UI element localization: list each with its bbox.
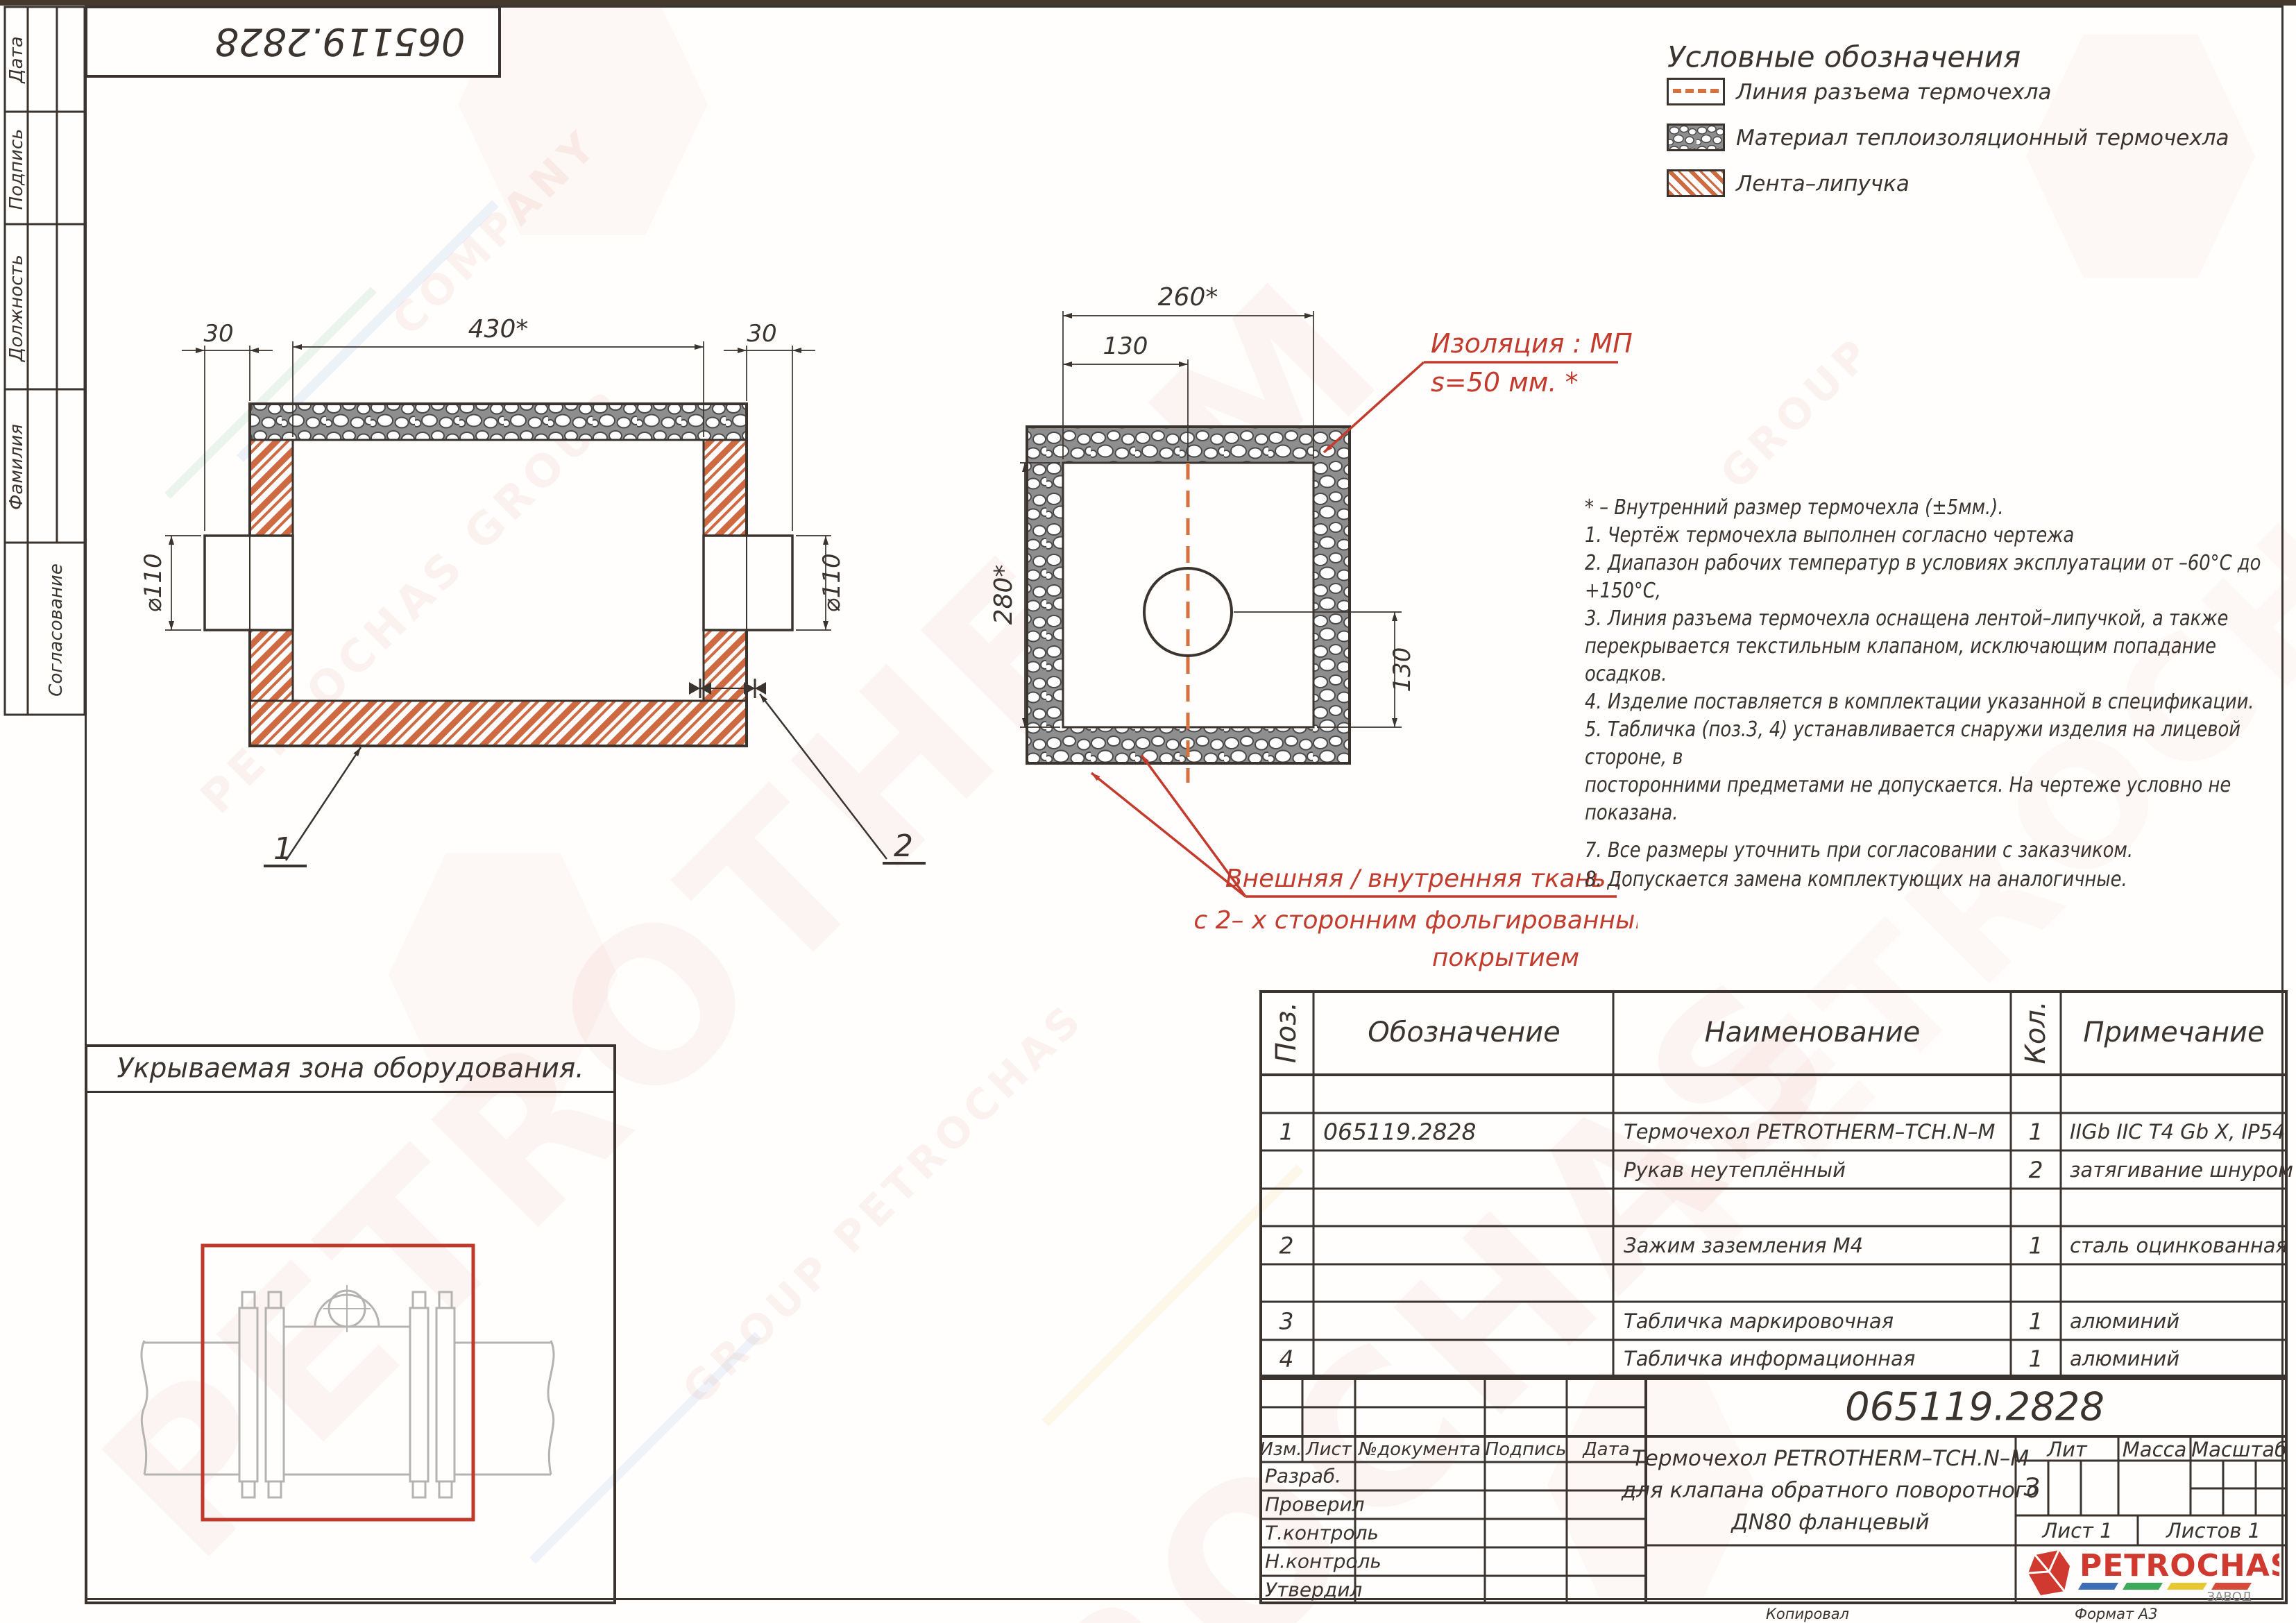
spec-cell: 1 — [2029, 1232, 2043, 1259]
tb-header: №документа — [1359, 1439, 1481, 1460]
spec-cell: Табличка маркировочная — [1624, 1309, 1894, 1333]
dim-inner-width: 430* — [468, 315, 529, 343]
note-line: посторонними предметами не допускается. … — [1585, 772, 2289, 827]
insulation-swatch — [1667, 124, 1725, 151]
spec-cell: 1 — [2029, 1345, 2043, 1373]
callout-clamp-number: 2 — [894, 829, 913, 864]
tb-role: Н.контроль — [1265, 1550, 1381, 1573]
spec-header-designation: Обозначение — [1368, 1017, 1561, 1048]
footer-copy-label: Копировал — [1766, 1606, 1849, 1622]
notes-block: * – Внутренний размер термочехла (±5мм.)… — [1585, 494, 2289, 827]
spec-cell: 065119.2828 — [1323, 1119, 1476, 1146]
spec-cell: алюминий — [2070, 1309, 2179, 1333]
fabric-callout-line3: покрытием — [1432, 944, 1579, 972]
note-line: 4. Изделие поставляется в комплектации у… — [1585, 688, 2289, 716]
spec-cell: 2 — [2029, 1157, 2043, 1184]
dim-outer-width: 260* — [1158, 283, 1218, 312]
spec-cell: сталь оцинкованная — [2070, 1234, 2288, 1257]
spec-cell: 1 — [1279, 1119, 1294, 1146]
spec-header-name: Наименование — [1705, 1017, 1921, 1048]
dim-dia-right: ⌀110 — [818, 553, 846, 612]
insulation-callout-line1: Изоляция : МП — [1431, 328, 1633, 359]
tb-header: Дата — [1583, 1439, 1629, 1460]
footer-format-label: Формат А3 — [2075, 1606, 2158, 1622]
drawing-sheet: PETROTHERM PETROCHAS PETROCHAS PETROCHAS… — [0, 0, 2296, 1623]
tb-header: Лист — [1306, 1439, 1352, 1460]
spec-cell: затягивание шнуром — [2070, 1158, 2293, 1182]
tb-scale-label: Масштаб — [2191, 1438, 2287, 1461]
tb-title-line: ДN80 фланцевый — [1731, 1510, 1929, 1535]
spec-header-pos: Поз. — [1270, 1002, 1302, 1064]
tb-title-line: для клапана обратного поворотного — [1622, 1478, 2040, 1503]
side-stamp-label: Подпись — [6, 129, 27, 210]
legend-title: Условные обозначения — [1667, 40, 2021, 74]
petrochas-logo-sub: ЗАВОД — [2207, 1590, 2252, 1602]
petrochas-logo-text: PETROCHAS — [2080, 1548, 2279, 1583]
legend-item-label: Линия разъема термочехла — [1736, 80, 2051, 105]
spec-cell: 2 — [1279, 1232, 1294, 1259]
note-line: 1. Чертёж термочехла выполнен согласно ч… — [1585, 522, 2289, 550]
spec-header-qty: Кол. — [2020, 1001, 2052, 1064]
spec-cell: 1 — [2029, 1119, 2043, 1146]
dim-center-offset: 130 — [1388, 647, 1416, 692]
petrochas-logo: PETROCHAS ЗАВОД — [2023, 1548, 2279, 1602]
sheet-top-edge — [0, 0, 2296, 6]
velcro-swatch — [1667, 169, 1725, 197]
dim-half-width: 130 — [1103, 332, 1148, 360]
fabric-callout-line2: с 2– х сторонним фольгированным — [1193, 906, 1638, 935]
dim-stub-right: 30 — [747, 320, 776, 348]
thermal-cover-section-view: 260* 130 280* 130 Изоляция : МП s=50 мм.… — [958, 278, 1638, 992]
tb-header: Подпись — [1486, 1439, 1567, 1460]
logo-color-bars — [2078, 1583, 2252, 1590]
note-line: 5. Табличка (поз.3, 4) устанавливается с… — [1585, 716, 2289, 772]
note-line: * – Внутренний размер термочехла (±5мм.)… — [1585, 494, 2289, 522]
insulation-callout-line2: s=50 мм. * — [1431, 367, 1579, 398]
spec-cell: IIGb IIC T4 Gb X, IP54 — [2070, 1120, 2286, 1144]
callout-cover-number: 1 — [273, 831, 293, 867]
thermal-cover-side-view: 30 430* 30 ⌀110 ⌀110 1 2 — [104, 278, 971, 902]
petrochas-logo-icon — [2028, 1550, 2070, 1595]
note-line: 2. Диапазон рабочих температур в условия… — [1585, 550, 2289, 605]
grid-line — [85, 1091, 616, 1093]
spec-cell: Рукав неутеплённый — [1624, 1158, 1846, 1182]
spec-cell: 4 — [1279, 1345, 1294, 1373]
side-stamp-label: Фамилия — [6, 424, 27, 510]
tb-lit-label: Лит — [2047, 1438, 2087, 1461]
side-stamp-label: Должность — [6, 255, 27, 362]
parting-line-icon — [1673, 89, 1719, 93]
tb-title-line: Термочехол PETROTHERM–TCH.N–M — [1632, 1446, 2029, 1471]
corner-stamp-number: 065119.2828 — [215, 20, 466, 64]
doc-number: 065119.2828 — [1845, 1385, 2104, 1430]
dim-dia-left: ⌀110 — [139, 553, 167, 612]
spec-cell: Термочехол PETROTHERM–TCH.N–M — [1624, 1120, 1995, 1144]
spec-cell: Зажим заземления М4 — [1624, 1234, 1863, 1257]
tb-role: Разраб. — [1265, 1465, 1341, 1488]
spec-cell: 3 — [1279, 1308, 1294, 1335]
note-line: 7. Все размеры уточнить при согласовании… — [1585, 836, 2289, 865]
covered-zone-outline — [203, 1246, 473, 1520]
spec-header-note: Примечание — [2083, 1017, 2264, 1048]
check-valve-drawing — [104, 1180, 590, 1540]
tb-header: Изм. — [1259, 1439, 1302, 1460]
fabric-callout-line1: Внешняя / внутренняя ткань : — [1225, 865, 1622, 893]
tb-role: Утвердил — [1265, 1579, 1362, 1601]
equipment-zone-title: Укрываемая зона оборудования. — [117, 1053, 584, 1085]
side-stamp-label: Дата — [6, 36, 27, 83]
spec-cell: алюминий — [2070, 1347, 2179, 1370]
dim-height: 280* — [989, 565, 1018, 625]
tb-lit-value: З — [2023, 1474, 2039, 1502]
note-line: 8. Допускается замена комплектующих на а… — [1585, 865, 2289, 894]
tb-mass-label: Масса — [2123, 1438, 2186, 1461]
spec-cell: 1 — [2029, 1308, 2043, 1335]
insulation-pattern-icon — [1669, 126, 1723, 149]
tb-role: Проверил — [1265, 1493, 1365, 1516]
side-stamp-label: Согласование — [46, 563, 67, 697]
spec-cell: Табличка информационная — [1624, 1347, 1915, 1370]
legend-item-label: Материал теплоизоляционный термочехла — [1736, 126, 2229, 151]
legend-item-label: Лента–липучка — [1736, 171, 1910, 196]
tb-sheet: Лист 1 — [2042, 1519, 2112, 1543]
notes-block-2: 7. Все размеры уточнить при согласовании… — [1585, 836, 2289, 894]
note-line: 3. Линия разъема термочехла оснащена лен… — [1585, 605, 2289, 633]
dim-stub-left: 30 — [203, 320, 233, 348]
tb-role: Т.контроль — [1265, 1522, 1379, 1545]
tb-sheets: Листов 1 — [2166, 1519, 2261, 1543]
note-line: перекрывается текстильным клапаном, искл… — [1585, 633, 2289, 688]
parting-line-swatch — [1667, 78, 1725, 105]
